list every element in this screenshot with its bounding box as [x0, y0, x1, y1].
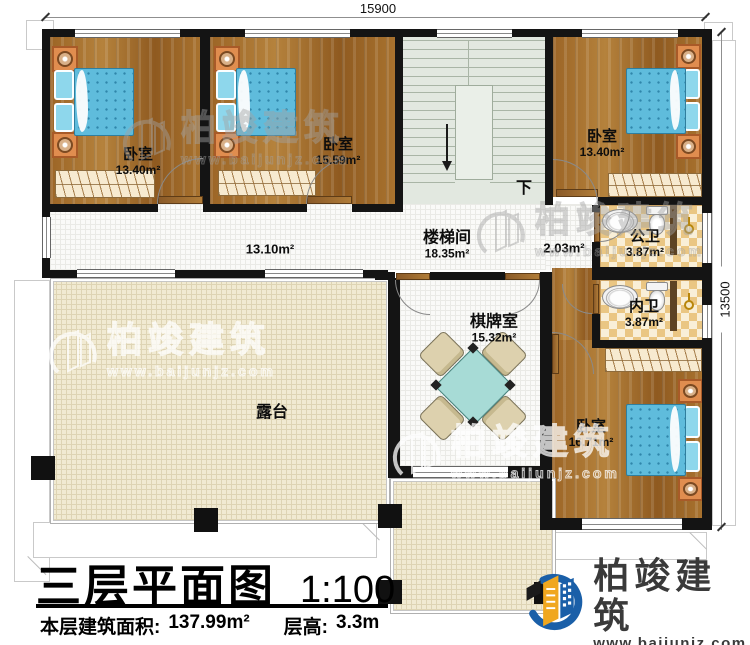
window: [245, 29, 350, 38]
room-name: 内卫: [625, 299, 663, 316]
pillow: [684, 69, 700, 99]
window: [437, 29, 512, 38]
brand-logo: 柏竣建筑 www.baijunjz.com: [524, 556, 750, 645]
window: [42, 217, 51, 258]
floor-height-value: 3.3m: [336, 612, 379, 639]
stairs-down-label: 下: [516, 174, 532, 198]
window: [77, 269, 175, 278]
title-underline: [36, 604, 388, 608]
wardrobe: [605, 348, 702, 372]
wardrobe: [608, 173, 702, 197]
dimension-tick: [701, 12, 710, 21]
shower-head: [684, 300, 694, 310]
bed-pillows: [684, 406, 700, 472]
room-label-game-room: 棋牌室 15.32m²: [470, 313, 518, 344]
room-area: 18.35m²: [423, 247, 471, 260]
wall-segment: [540, 272, 552, 530]
wall-segment: [545, 197, 553, 205]
terrace-column: [31, 456, 55, 480]
room-area: 13.40m²: [116, 164, 161, 177]
wall-segment: [430, 272, 505, 280]
bed-pillows: [684, 69, 700, 131]
nightstand: [214, 132, 240, 158]
window: [702, 305, 712, 338]
wall-segment: [592, 242, 600, 267]
corridor-area-label: 13.10m²: [246, 242, 294, 257]
room-area: 3.87m²: [626, 246, 664, 259]
pillow: [54, 103, 74, 133]
room-name: 卧室: [580, 129, 625, 146]
wall-segment: [395, 37, 403, 204]
wall-segment: [545, 37, 553, 197]
door-leaf: [396, 273, 430, 280]
wall-segment: [50, 204, 158, 212]
room-area: 13.40m²: [580, 146, 625, 159]
terrace-floor: [50, 278, 390, 524]
window: [265, 269, 363, 278]
door-leaf: [505, 273, 540, 280]
dimension-top-value: 15900: [345, 1, 411, 16]
wall-segment: [352, 204, 403, 212]
brand-logo-icon: [524, 566, 585, 642]
stair-arrow-head: [442, 161, 452, 171]
pillow: [216, 103, 236, 133]
wardrobe: [218, 170, 316, 196]
window: [702, 213, 712, 263]
dimension-right-value: 13500: [718, 267, 733, 333]
corridor-floor: [50, 204, 592, 270]
wall-segment: [203, 204, 307, 212]
window: [582, 29, 678, 38]
stair-landing: [455, 85, 493, 180]
room-name: 公卫: [626, 229, 664, 246]
spacer: [258, 612, 276, 639]
window: [75, 29, 180, 38]
nightstand: [52, 132, 78, 158]
room-name: 卧室: [116, 147, 161, 164]
floor-area-label: 本层建筑面积:: [40, 612, 160, 639]
room-area: 16.71m²: [569, 436, 614, 449]
nightstand: [676, 44, 701, 69]
stair-treads: [403, 40, 545, 90]
wall-segment: [592, 340, 702, 348]
pillow: [54, 70, 74, 100]
title-subtitle: 本层建筑面积: 137.99m² 层高: 3.3m: [40, 612, 379, 639]
room-label-bedroom2: 卧室 15.59m²: [316, 137, 361, 167]
terrace-column: [378, 504, 402, 528]
floor-plan-canvas: 卧室 13.40m² 卧室 15.59m² 卧室 13.40m² 卧室 16.7…: [0, 0, 750, 645]
room-label-bedroom3: 卧室 13.40m²: [580, 129, 625, 159]
stair-lobby-area-label: 2.03m²: [543, 241, 584, 256]
shower-partition: [670, 205, 677, 255]
wall-segment: [598, 197, 702, 205]
brand-website: www.baijunjz.com: [593, 635, 750, 645]
wall-segment: [702, 29, 712, 530]
nightstand: [678, 379, 703, 403]
wall-segment: [388, 278, 400, 478]
room-name: 露台: [256, 404, 288, 422]
room-label-bedroom1: 卧室 13.40m²: [116, 147, 161, 177]
stair-rail: [468, 40, 469, 86]
pillow: [684, 406, 700, 438]
room-name: 棋牌室: [470, 313, 518, 331]
room-label-public-bath: 公卫 3.87m²: [626, 229, 664, 259]
nightstand: [678, 477, 703, 501]
room-name: 卧室: [569, 419, 614, 436]
shower-partition: [670, 281, 677, 331]
room-area: 3.87m²: [625, 316, 663, 329]
shower-head: [684, 224, 694, 234]
room-label-stairwell: 楼梯间 18.35m²: [423, 229, 471, 260]
room-label-inner-bath: 内卫 3.87m²: [625, 299, 663, 329]
bed-pillows: [216, 70, 236, 132]
bed-pillows: [54, 70, 74, 132]
terrace-column: [194, 508, 218, 532]
room-area: 15.32m²: [470, 331, 518, 344]
stair-lobby-floor: [545, 205, 592, 270]
wall-segment: [592, 205, 600, 212]
dimension-line-top: [45, 17, 707, 18]
room-name: 卧室: [316, 137, 361, 154]
floor-area-value: 137.99m²: [168, 612, 249, 639]
room-name: 楼梯间: [423, 229, 471, 247]
nightstand: [676, 134, 701, 159]
floor-height-label: 层高:: [284, 612, 328, 639]
pillow: [684, 441, 700, 473]
room-area: 15.59m²: [316, 154, 361, 167]
door-leaf: [593, 284, 599, 314]
window: [582, 518, 682, 530]
window: [413, 466, 508, 478]
brand-name: 柏竣建筑: [593, 556, 750, 635]
room-label-terrace: 露台: [256, 404, 288, 422]
room-label-bedroom4: 卧室 16.71m²: [569, 419, 614, 449]
wall-segment: [592, 267, 702, 280]
wall-segment: [592, 314, 600, 340]
pillow: [684, 102, 700, 132]
stair-direction-arrow: [446, 124, 448, 162]
pillow: [216, 70, 236, 100]
